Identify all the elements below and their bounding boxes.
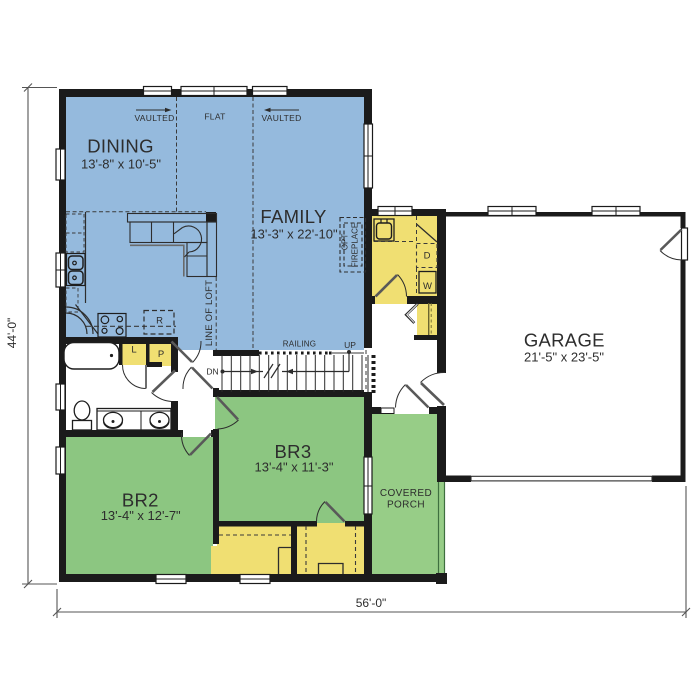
svg-text:LINE OF LOFT: LINE OF LOFT [204,280,215,346]
svg-text:56'-0": 56'-0" [356,596,387,610]
svg-text:OPT: OPT [341,234,350,251]
svg-text:13'-4" x 11'-3": 13'-4" x 11'-3" [255,460,334,475]
svg-text:COVERED: COVERED [380,488,432,499]
svg-text:FLAT: FLAT [204,112,225,122]
svg-text:13'-8" x 10'-5": 13'-8" x 10'-5" [81,157,161,172]
svg-text:RAILING: RAILING [283,340,316,349]
svg-text:FAMILY: FAMILY [260,206,326,227]
svg-text:W: W [423,281,432,292]
svg-text:DINING: DINING [87,136,154,157]
svg-text:VAULTED: VAULTED [261,113,301,123]
svg-text:L: L [131,345,136,356]
svg-text:D: D [424,251,431,262]
svg-text:13'-3" x 22'-10": 13'-3" x 22'-10" [250,227,338,242]
svg-text:DN: DN [206,367,218,377]
svg-text:PORCH: PORCH [387,500,425,511]
svg-text:21'-5" x 23'-5": 21'-5" x 23'-5" [524,350,604,365]
svg-text:GARAGE: GARAGE [524,330,605,351]
svg-text:P: P [158,349,164,360]
svg-text:FIREPLACE: FIREPLACE [351,223,360,267]
svg-text:13'-4" x 12'-7": 13'-4" x 12'-7" [101,508,181,523]
svg-text:VAULTED: VAULTED [134,113,174,123]
svg-text:UP: UP [344,340,356,350]
svg-text:44'-0": 44'-0" [5,318,19,349]
svg-text:R: R [156,316,163,327]
